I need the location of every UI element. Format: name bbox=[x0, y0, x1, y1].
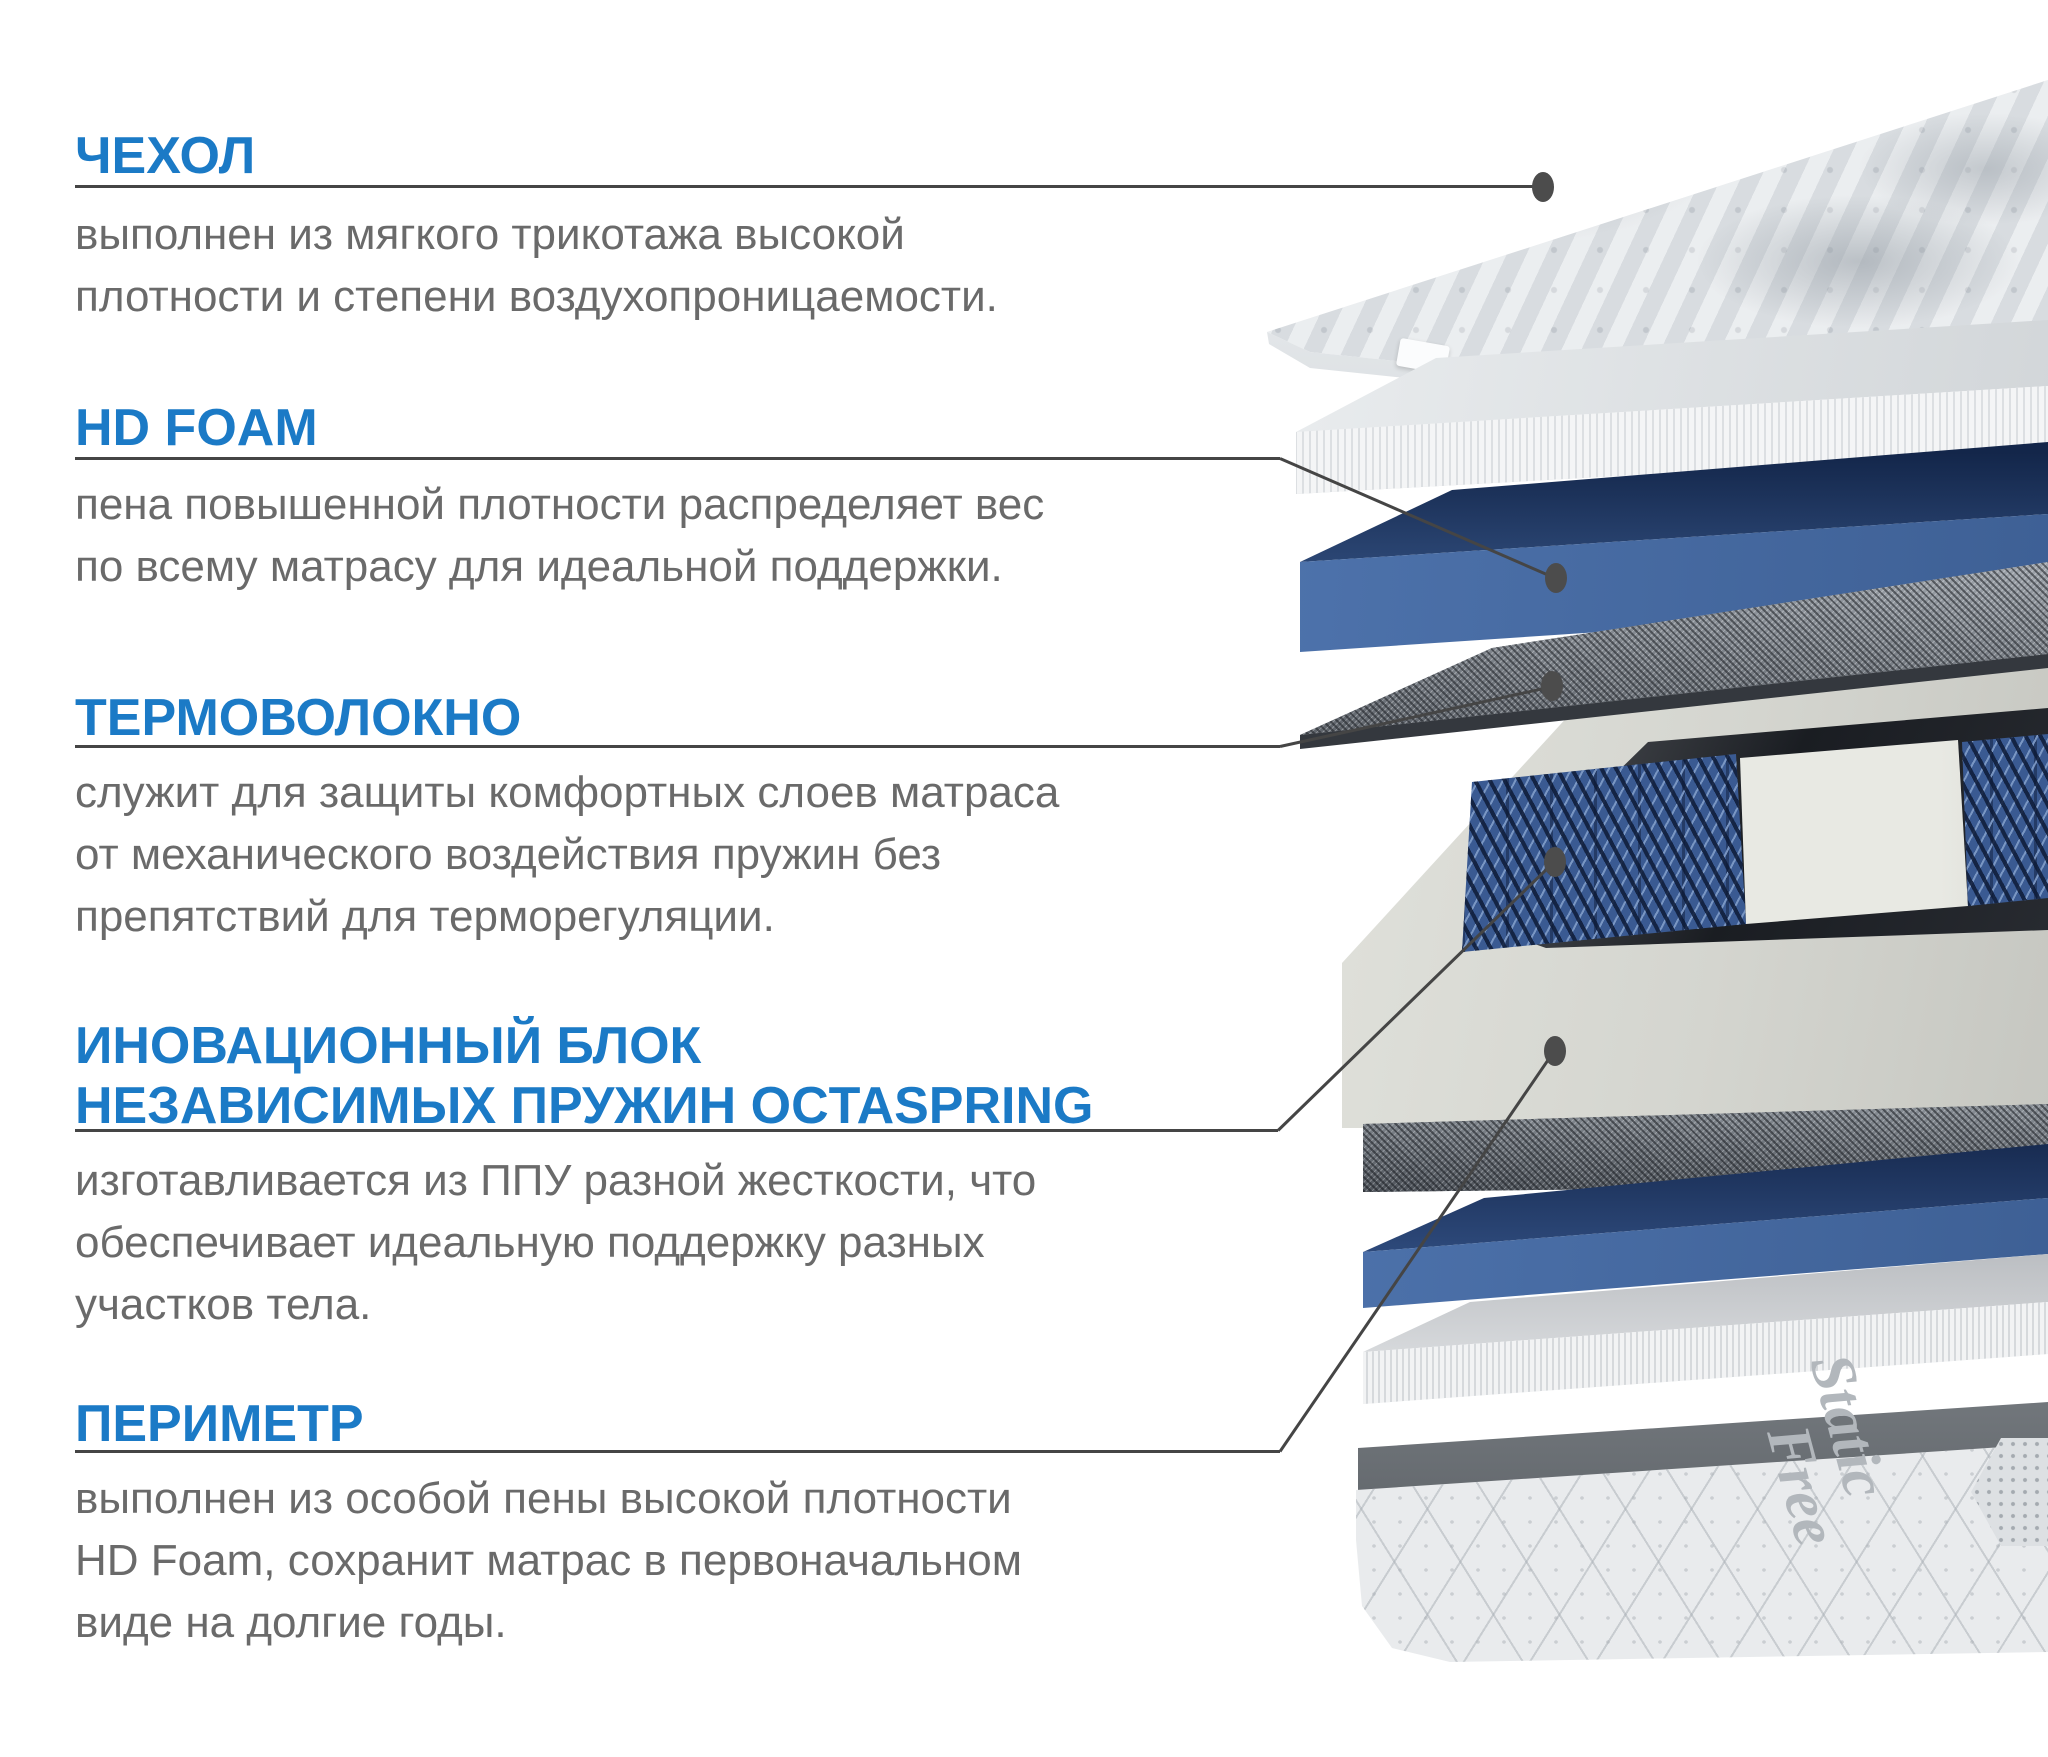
section-octaspring-block: ИНОВАЦИОННЫЙ БЛОК НЕЗАВИСИМЫХ ПРУЖИН OCT… bbox=[75, 1016, 1265, 1336]
description-line: от механического воздействия пружин без bbox=[75, 824, 1265, 886]
layer-white-core-block bbox=[1350, 1245, 2048, 1410]
section-perimeter: ПЕРИМЕТР выполнен из особой пены высокой… bbox=[75, 1394, 1265, 1654]
description-line: выполнен из мягкого трикотажа высокой bbox=[75, 204, 1265, 266]
layer-thermo-felt-upper bbox=[1290, 545, 2048, 760]
description-line: плотности и степени воздухопроницаемости… bbox=[75, 266, 1265, 328]
layer-marker-dot-perimeter bbox=[1544, 1036, 1566, 1066]
section-thermo-fiber: ТЕРМОВОЛОКНО служит для защиты комфортны… bbox=[75, 688, 1265, 948]
section-thermo-fiber-title: ТЕРМОВОЛОКНО bbox=[75, 688, 1265, 748]
description-line: изготавливается из ППУ разной жесткости,… bbox=[75, 1150, 1265, 1212]
description-line: пена повышенной плотности распределяет в… bbox=[75, 474, 1265, 536]
layer-marker-dot-cover bbox=[1532, 172, 1554, 202]
section-perimeter-description: выполнен из особой пены высокой плотност… bbox=[75, 1468, 1265, 1654]
section-hd-foam-title: HD FOAM bbox=[75, 398, 1265, 458]
layer-marker-dot-thermo bbox=[1541, 671, 1563, 701]
description-line: препятствий для терморегуляции. bbox=[75, 886, 1265, 948]
layer-marker-dot-hdfoam bbox=[1545, 563, 1567, 593]
section-octaspring-title-line2: НЕЗАВИСИМЫХ ПРУЖИН OCTASPRING bbox=[75, 1076, 1265, 1136]
section-octaspring-description: изготавливается из ППУ разной жесткости,… bbox=[75, 1150, 1265, 1336]
description-line: обеспечивает идеальную поддержку разных bbox=[75, 1212, 1265, 1274]
section-hd-foam-description: пена повышенной плотности распределяет в… bbox=[75, 474, 1265, 598]
section-cover-description: выполнен из мягкого трикотажа высокой пл… bbox=[75, 204, 1265, 328]
section-perimeter-title: ПЕРИМЕТР bbox=[75, 1394, 1265, 1454]
description-line: виде на долгие годы. bbox=[75, 1592, 1265, 1654]
section-thermo-fiber-description: служит для защиты комфортных слоев матра… bbox=[75, 762, 1265, 948]
description-line: участков тела. bbox=[75, 1274, 1265, 1336]
description-line: HD Foam, сохранит матрас в первоначально… bbox=[75, 1530, 1265, 1592]
section-hd-foam: HD FOAM пена повышенной плотности распре… bbox=[75, 398, 1265, 598]
layer-marker-dot-octaspring bbox=[1544, 847, 1566, 877]
mattress-layers-infographic: Static Free ЧЕХОЛ выполнен из мягкого тр… bbox=[0, 0, 2048, 1757]
layer-quilted-base: Static Free bbox=[1335, 1390, 2048, 1680]
description-line: выполнен из особой пены высокой плотност… bbox=[75, 1468, 1265, 1530]
section-octaspring-title-line1: ИНОВАЦИОННЫЙ БЛОК bbox=[75, 1016, 1265, 1076]
description-line: служит для защиты комфортных слоев матра… bbox=[75, 762, 1265, 824]
section-cover: ЧЕХОЛ выполнен из мягкого трикотажа высо… bbox=[75, 126, 1265, 328]
description-line: по всему матрасу для идеальной поддержки… bbox=[75, 536, 1265, 598]
section-cover-title: ЧЕХОЛ bbox=[75, 126, 1265, 186]
